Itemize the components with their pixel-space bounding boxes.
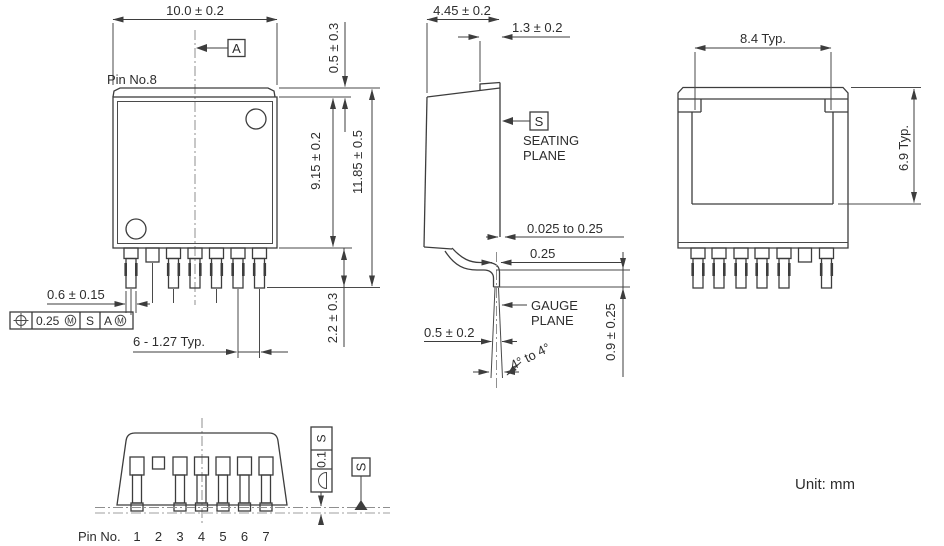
dim-tab-exposed: 0.5 ± 0.3 (326, 23, 341, 74)
drawing-canvas: 10.0 ± 0.2 A Pin No.8 0.5 ± 0.3 9.15 ± 0… (0, 0, 944, 546)
front-hole-top-right (246, 109, 266, 129)
pin-3 (167, 248, 181, 288)
side-lead-inner (445, 251, 494, 287)
seating-plane-flag: S SEATING PLANE (502, 112, 579, 163)
gauge-plane-text-1: GAUGE (531, 298, 578, 313)
pin-number-3: 3 (176, 529, 183, 544)
dim-body-depth: 4.45 ± 0.2 (433, 3, 491, 18)
flatness-tolerance-frame: S 0.1 (311, 427, 332, 524)
primary-datum-ref: S (86, 314, 94, 328)
material-modifier-icon: M (65, 315, 75, 325)
pin (216, 457, 230, 511)
front-tab-outline (113, 88, 275, 97)
position-tolerance-value: 0.25 (36, 314, 60, 328)
dim-standoff: 0.025 to 0.25 (527, 221, 603, 236)
dim-lead-width: 0.6 ± 0.15 (47, 287, 105, 302)
pin (734, 248, 748, 288)
pin (130, 457, 144, 511)
dim-overall-height: 11.85 ± 0.5 (350, 130, 365, 194)
dim-lead-pitch: 6 - 1.27 Typ. (133, 334, 205, 349)
pin-number-4: 4 (198, 529, 205, 544)
bottom-view: S 0.1 S Pin No. 1 2 3 4 5 6 7 (78, 418, 390, 544)
seating-plane-text-2: PLANE (523, 148, 566, 163)
seating-datum-label: S (535, 114, 544, 129)
dim-body-width: 10.0 ± 0.2 (166, 3, 224, 18)
dim-tab-width: 8.4 Typ. (740, 31, 786, 46)
side-view: 4.45 ± 0.2 1.3 ± 0.2 S SEATING PLANE 0.0… (424, 3, 630, 388)
flatness-datum-ref: S (315, 434, 329, 442)
pin8-label: Pin No.8 (107, 72, 157, 87)
dim-body-height: 9.15 ± 0.2 (308, 132, 323, 190)
datum-a-label: A (232, 41, 241, 56)
pin (173, 457, 187, 511)
package-outline-drawing: 10.0 ± 0.2 A Pin No.8 0.5 ± 0.3 9.15 ± 0… (0, 0, 944, 546)
pin-6 (231, 248, 245, 288)
front-view: 10.0 ± 0.2 A Pin No.8 0.5 ± 0.3 9.15 ± 0… (10, 3, 380, 358)
dim-lead-thickness: 0.25 (530, 246, 555, 261)
pin (777, 248, 791, 288)
seating-datum-label: S (354, 462, 369, 471)
profile-symbol-icon (319, 473, 327, 489)
pin-number-5: 5 (219, 529, 226, 544)
pin-5 (210, 248, 224, 288)
dim-tab-height: 6.9 Typ. (896, 125, 911, 171)
seating-datum-flag: S (352, 458, 370, 510)
back-tab-outline (692, 112, 833, 204)
side-body-left-edge (424, 97, 427, 247)
bottom-pins (130, 457, 273, 511)
position-tolerance-frame: 0.25 M S A M (10, 312, 133, 329)
datum-a-flag: A (196, 40, 245, 57)
pin-number-1: 1 (133, 529, 140, 544)
dim-foot-width: 0.5 ± 0.2 (424, 325, 475, 340)
pin (820, 248, 834, 288)
svg-text:M: M (67, 317, 74, 326)
back-body-outline (678, 88, 848, 249)
dim-tab-depth: 1.3 ± 0.2 (512, 20, 563, 35)
dim-gauge-height: 0.9 ± 0.25 (603, 303, 618, 361)
seating-plane-text-1: SEATING (523, 133, 579, 148)
pin-row-label: Pin No. (78, 529, 121, 544)
front-body-outline (113, 97, 277, 248)
pin-number-7: 7 (262, 529, 269, 544)
dim-lead-protrusion: 2.2 ± 0.3 (325, 293, 340, 344)
back-view: 8.4 Typ. 6.9 Typ. (678, 31, 921, 288)
side-body-top (427, 88, 500, 97)
gauge-plane-text-2: PLANE (531, 313, 574, 328)
side-body-bottom (424, 247, 452, 249)
pin (691, 248, 705, 288)
dim-lead-angle: 4° to 4° (508, 340, 553, 373)
pin-stub (799, 248, 812, 262)
unit-label: Unit: mm (795, 476, 855, 493)
pin (712, 248, 726, 288)
pin-1 (124, 248, 138, 288)
back-pins (691, 248, 834, 288)
svg-text:M: M (117, 317, 124, 326)
pin (755, 248, 769, 288)
material-modifier-icon: M (115, 315, 125, 325)
pin (238, 457, 252, 511)
pin-2-stub (146, 248, 159, 262)
pin-number-2: 2 (155, 529, 162, 544)
pin-7 (253, 248, 267, 288)
front-hole-bottom-left (126, 219, 146, 239)
pin-number-6: 6 (241, 529, 248, 544)
side-lead-outer (452, 248, 500, 287)
position-symbol-icon (14, 313, 29, 328)
pin (259, 457, 273, 511)
pin (195, 457, 209, 511)
pin-stub (153, 457, 165, 469)
flatness-value: 0.1 (315, 451, 329, 468)
secondary-datum-ref: A (104, 314, 112, 328)
